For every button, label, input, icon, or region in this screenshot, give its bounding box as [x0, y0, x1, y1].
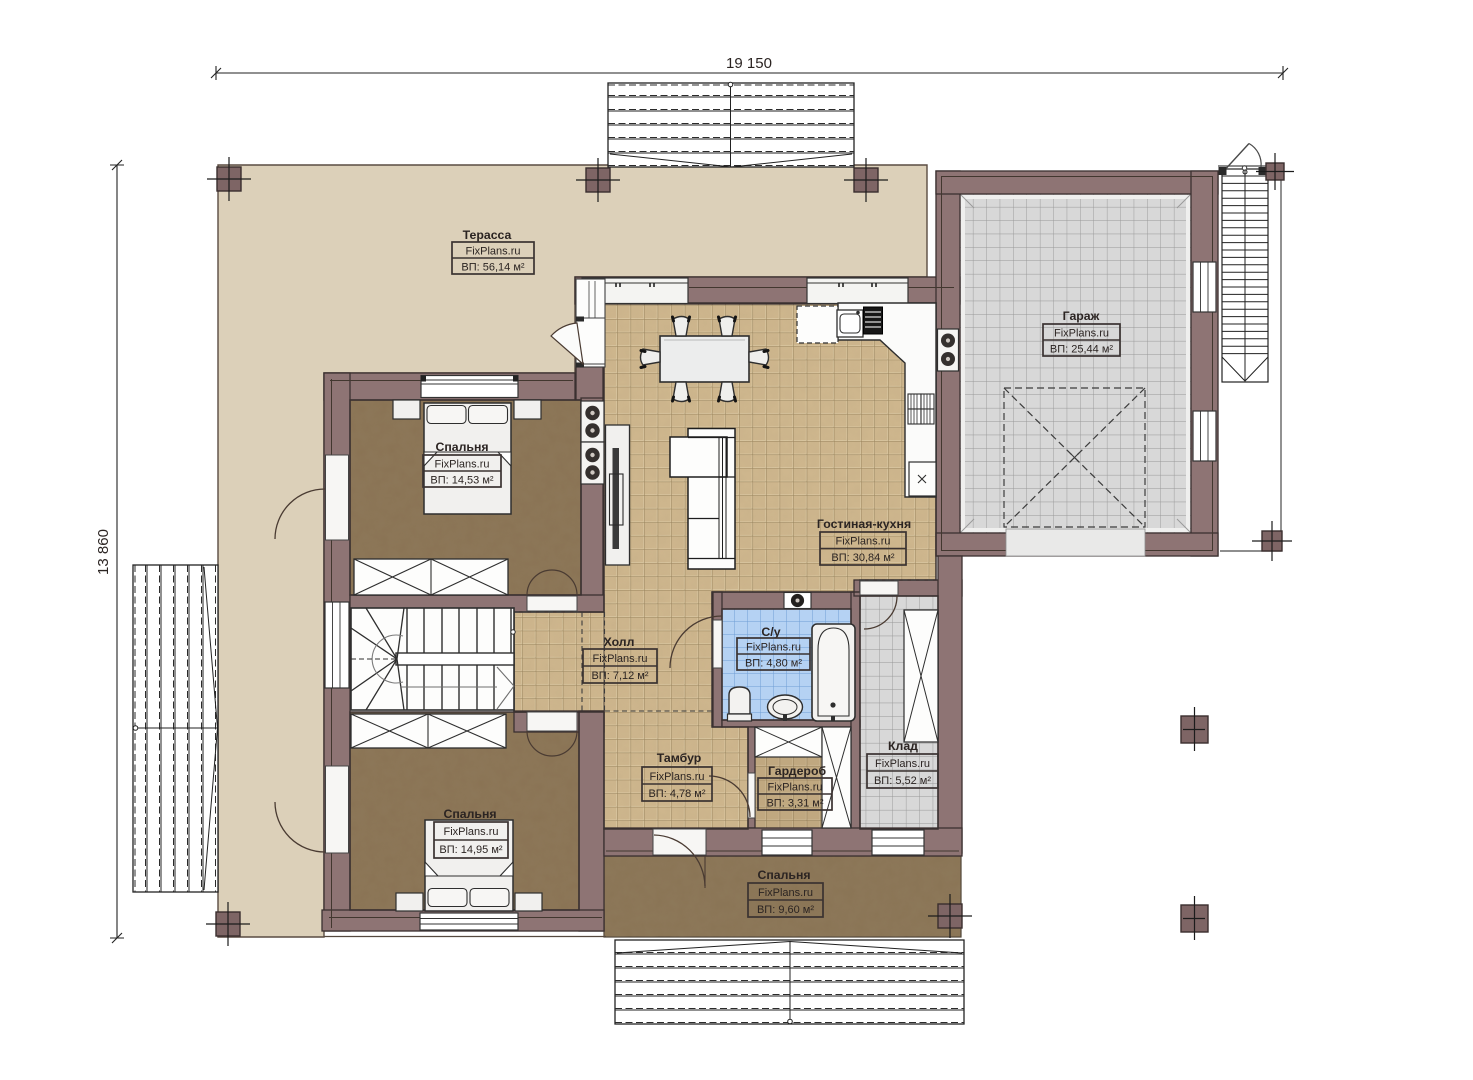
svg-text:ВП: 25,44 м²: ВП: 25,44 м² — [1050, 344, 1114, 356]
svg-text:Холл: Холл — [604, 635, 635, 649]
svg-text:ВП: 30,84 м²: ВП: 30,84 м² — [831, 552, 895, 564]
svg-text:ВП: 4,78 м²: ВП: 4,78 м² — [648, 788, 705, 800]
svg-text:ВП: 14,95 м²: ВП: 14,95 м² — [439, 844, 503, 856]
svg-text:ВП: 9,60 м²: ВП: 9,60 м² — [757, 904, 814, 916]
svg-text:Спальня: Спальня — [443, 807, 496, 821]
svg-text:FixPlans.ru: FixPlans.ru — [443, 826, 498, 838]
svg-text:ВП: 56,14 м²: ВП: 56,14 м² — [461, 262, 525, 274]
svg-text:Гостиная-кухня: Гостиная-кухня — [817, 517, 911, 531]
svg-text:FixPlans.ru: FixPlans.ru — [746, 642, 801, 654]
svg-text:13 860: 13 860 — [95, 529, 112, 575]
svg-text:Тамбур: Тамбур — [657, 751, 702, 765]
svg-text:FixPlans.ru: FixPlans.ru — [767, 782, 822, 794]
svg-text:FixPlans.ru: FixPlans.ru — [758, 887, 813, 899]
svg-text:Терасса: Терасса — [463, 228, 512, 242]
svg-text:ВП: 3,31 м²: ВП: 3,31 м² — [766, 798, 823, 810]
svg-text:FixPlans.ru: FixPlans.ru — [1054, 328, 1109, 340]
svg-text:FixPlans.ru: FixPlans.ru — [875, 758, 930, 770]
svg-text:FixPlans.ru: FixPlans.ru — [465, 246, 520, 258]
svg-text:ВП: 14,53 м²: ВП: 14,53 м² — [430, 475, 494, 487]
svg-text:19 150: 19 150 — [726, 55, 772, 72]
svg-text:FixPlans.ru: FixPlans.ru — [434, 459, 489, 471]
svg-text:Гараж: Гараж — [1063, 309, 1100, 323]
svg-text:FixPlans.ru: FixPlans.ru — [835, 536, 890, 548]
svg-text:FixPlans.ru: FixPlans.ru — [592, 653, 647, 665]
svg-text:FixPlans.ru: FixPlans.ru — [649, 771, 704, 783]
svg-text:ВП: 4,80 м²: ВП: 4,80 м² — [745, 658, 802, 670]
svg-text:Клад: Клад — [888, 739, 918, 753]
svg-text:С/у: С/у — [761, 625, 780, 639]
svg-text:Гардероб: Гардероб — [768, 764, 827, 778]
svg-text:Спальня: Спальня — [435, 440, 488, 454]
svg-text:Спальня: Спальня — [757, 868, 810, 882]
svg-text:ВП: 5,52 м²: ВП: 5,52 м² — [874, 775, 931, 787]
svg-text:ВП: 7,12 м²: ВП: 7,12 м² — [591, 670, 648, 682]
